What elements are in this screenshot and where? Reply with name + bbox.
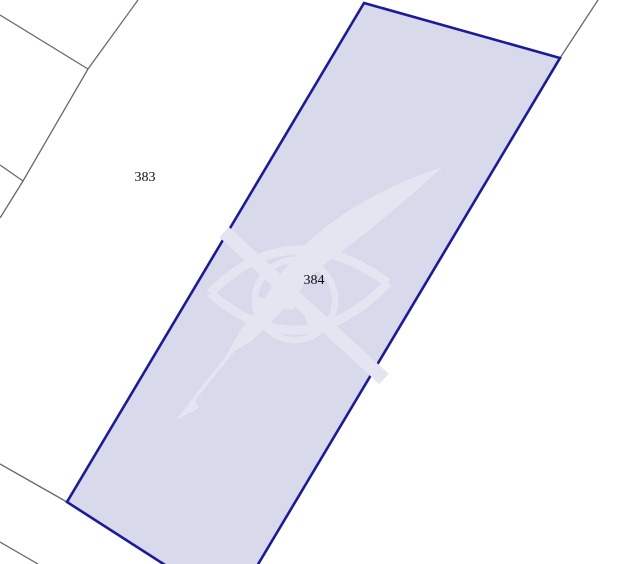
cadastral-map-canvas[interactable]: 383 384 [0, 0, 623, 564]
parcel-383-label: 383 [135, 170, 156, 185]
cadastral-map-viewport[interactable]: 383 384 [0, 0, 623, 564]
parcel-384-label: 384 [304, 273, 325, 288]
